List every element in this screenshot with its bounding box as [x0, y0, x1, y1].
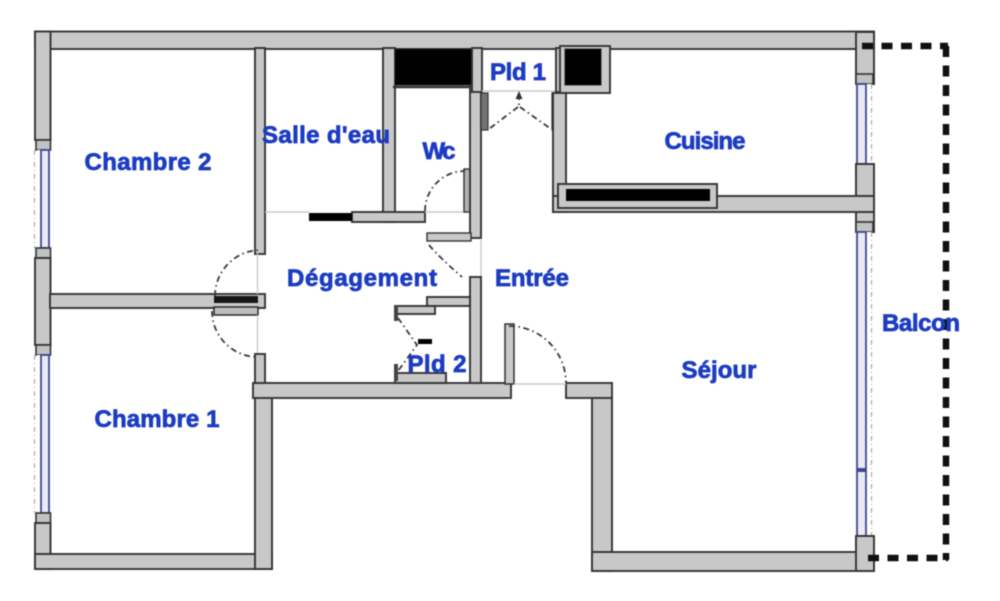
- svg-text:Pld 2: Pld 2: [408, 351, 467, 378]
- svg-text:Chambre 2: Chambre 2: [85, 149, 212, 176]
- svg-text:Balcon: Balcon: [882, 310, 960, 337]
- svg-text:Wc: Wc: [423, 138, 456, 165]
- svg-text:Salle d'eau: Salle d'eau: [262, 122, 390, 149]
- svg-text:Cuisine: Cuisine: [665, 128, 746, 155]
- svg-text:Pld 1: Pld 1: [490, 59, 546, 86]
- svg-text:Chambre 1: Chambre 1: [95, 406, 220, 433]
- svg-text:Entrée: Entrée: [495, 265, 569, 292]
- svg-text:Dégagement: Dégagement: [287, 265, 437, 292]
- svg-text:Séjour: Séjour: [682, 357, 757, 384]
